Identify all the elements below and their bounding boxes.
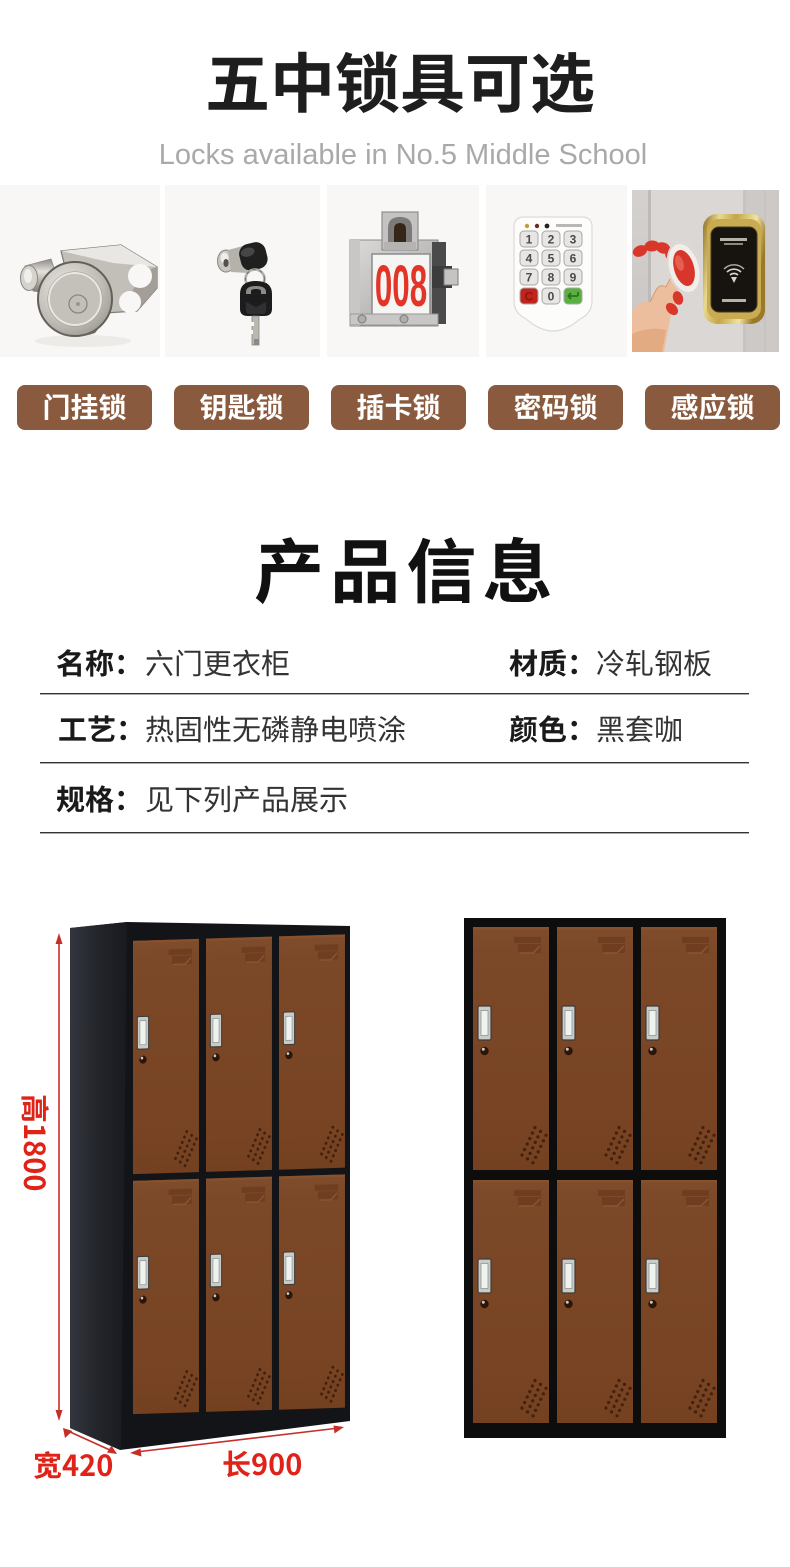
svg-text:3: 3 <box>570 233 577 247</box>
svg-text:008: 008 <box>375 254 427 319</box>
svg-text:5: 5 <box>548 252 555 266</box>
svg-text:C: C <box>525 290 534 304</box>
svg-text:6: 6 <box>570 252 577 266</box>
svg-text:Locks available in No.5 Middle: Locks available in No.5 Middle School <box>159 139 647 171</box>
svg-text:4: 4 <box>526 252 533 266</box>
svg-text:2: 2 <box>548 233 555 247</box>
svg-text:8: 8 <box>548 271 555 285</box>
svg-text:1: 1 <box>526 233 533 247</box>
svg-text:0: 0 <box>548 290 555 304</box>
svg-text:9: 9 <box>570 271 577 285</box>
svg-text:7: 7 <box>526 271 533 285</box>
